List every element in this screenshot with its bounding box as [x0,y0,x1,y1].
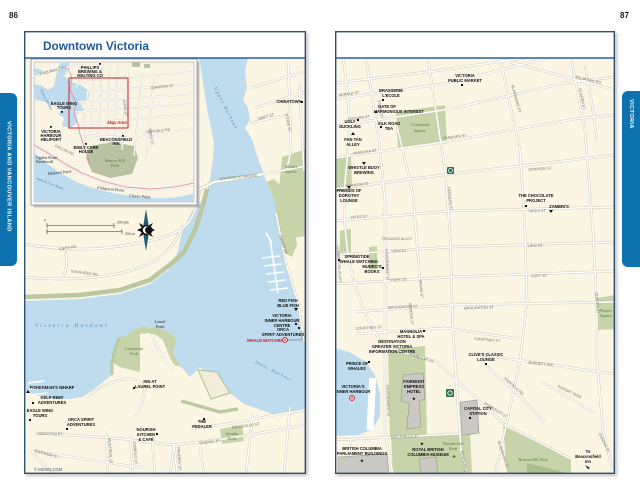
svg-text:FORT ST: FORT ST [531,274,548,279]
svg-text:Park: Park [227,436,236,441]
svg-text:BOOKS: BOOKS [364,269,379,274]
svg-text:INNER HARBOUR: INNER HARBOUR [336,389,371,394]
svg-text:HOTEL: HOTEL [407,389,421,394]
svg-text:LOUNGE: LOUNGE [340,198,358,203]
svg-text:FISHERMAN'S WHARF: FISHERMAN'S WHARF [30,385,75,390]
svg-text:© MOON.COM: © MOON.COM [34,467,63,472]
svg-text:Park: Park [110,163,119,168]
svg-text:& CAFÉ: & CAFÉ [138,437,154,442]
svg-text:BLUE FISH: BLUE FISH [277,303,299,308]
svg-text:Square: Square [600,313,612,318]
svg-text:PARLIAMENT BUILDINGS: PARLIAMENT BUILDINGS [337,451,387,456]
svg-text:YATES ST: YATES ST [528,209,546,214]
svg-text:CHINATOWN: CHINATOWN [276,99,301,104]
svg-text:WHALES: WHALES [348,366,366,371]
svg-text:VIEW ST: VIEW ST [391,249,407,254]
svg-text:HOUSE: HOUSE [79,149,94,154]
svg-text:TOURS: TOURS [33,413,48,418]
svg-text:Park: Park [129,351,138,356]
svg-text:L'ECOLE: L'ECOLE [382,93,400,98]
svg-text:Breakwall: Breakwall [36,159,54,164]
svg-text:STATION: STATION [469,411,486,416]
svg-text:ADVENTURES: ADVENTURES [67,422,95,427]
svg-text:★: ★ [412,396,416,401]
svg-text:MALTING CO: MALTING CO [77,73,103,78]
svg-text:0: 0 [44,219,46,223]
svg-text:INN: INN [112,141,119,146]
svg-text:VIEW ST: VIEW ST [527,244,543,249]
svg-text:BREWING: BREWING [354,170,374,175]
svg-text:HELIPORT: HELIPORT [41,137,62,142]
svg-text:ALLEY: ALLEY [346,142,360,147]
svg-text:INFORMATION CENTRE: INFORMATION CENTRE [369,349,416,354]
svg-text:TEA: TEA [385,126,393,131]
svg-text:PUBLIC MARKET: PUBLIC MARKET [448,78,482,83]
svg-text:PEDALER: PEDALER [192,424,212,429]
svg-text:DUCKLING: DUCKLING [339,124,361,129]
svg-text:LOUNGE: LOUNGE [477,357,495,362]
svg-text:WHALE-WATCHING: WHALE-WATCHING [247,338,285,343]
svg-text:FORT ST: FORT ST [391,278,408,283]
svg-text:Square: Square [285,169,297,174]
svg-text:LAUREL POINT: LAUREL POINT [135,384,166,389]
svg-text:COLUMBIA MUSEUM: COLUMBIA MUSEUM [407,452,449,457]
svg-text:Beacon Hill Park: Beacon Hill Park [518,457,547,462]
svg-text:Map Area: Map Area [107,120,127,125]
svg-text:TROUNCE ALLEY: TROUNCE ALLEY [382,237,413,241]
svg-text:Downtown Victoria: Downtown Victoria [43,39,149,53]
svg-text:PROJECT: PROJECT [526,198,546,203]
svg-text:Square: Square [414,128,426,133]
svg-text:Victoria Harbour: Victoria Harbour [35,323,109,329]
svg-text:200 yds: 200 yds [117,221,129,225]
svg-text:ADVENTURES: ADVENTURES [38,400,66,405]
svg-text:SPIRIT ADVENTURES: SPIRIT ADVENTURES [262,332,305,337]
svg-text:Centennial: Centennial [411,122,430,127]
svg-text:★: ★ [360,458,364,463]
svg-text:ZAMBRI'S: ZAMBRI'S [549,204,569,209]
svg-text:HARMONIOUS INTEREST: HARMONIOUS INTEREST [374,109,424,114]
svg-text:TOURS: TOURS [57,105,72,110]
svg-text:200 m: 200 m [125,232,135,236]
svg-text:Park: Park [448,446,457,451]
svg-text:Point: Point [156,324,166,329]
svg-text:KINGSTON ST: KINGSTON ST [38,432,64,436]
svg-text:Inn: Inn [585,459,592,464]
svg-text:★: ★ [420,441,424,446]
